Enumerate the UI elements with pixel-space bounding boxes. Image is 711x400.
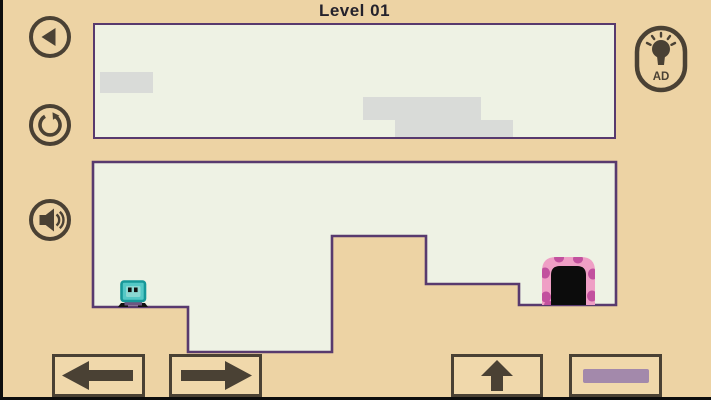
up-arrow-icon [454,357,540,394]
speaker-icon [28,198,72,242]
cloud-block [363,97,481,120]
player-character [118,282,148,308]
level-title: Level 01 [93,1,616,21]
sound-button[interactable] [28,198,72,242]
cloud-block [100,72,153,93]
door-opening [551,266,586,305]
character-eye [128,288,132,293]
restart-button[interactable] [28,103,72,147]
dash-button[interactable] [569,354,662,397]
sky-panel [93,23,616,139]
right-arrow-icon [172,357,259,394]
terrain-outline [93,162,616,352]
character-eye [134,288,138,293]
cloud-block [395,120,513,137]
back-arrow-icon [28,15,72,59]
hint-button[interactable]: AD [634,25,688,93]
jump-button[interactable] [451,354,543,397]
dash-bar-icon [583,369,649,383]
screen-edge-left [0,0,3,400]
move-left-button[interactable] [52,354,145,397]
move-right-button[interactable] [169,354,262,397]
back-button[interactable] [28,15,72,59]
hint-ad-label: AD [653,71,670,83]
exit-door [540,254,598,310]
game-screen: Level 01 [0,0,711,400]
playfield-panel [90,159,620,356]
left-arrow-icon [55,357,142,394]
restart-icon [28,103,72,147]
lightbulb-icon: AD [634,25,688,93]
